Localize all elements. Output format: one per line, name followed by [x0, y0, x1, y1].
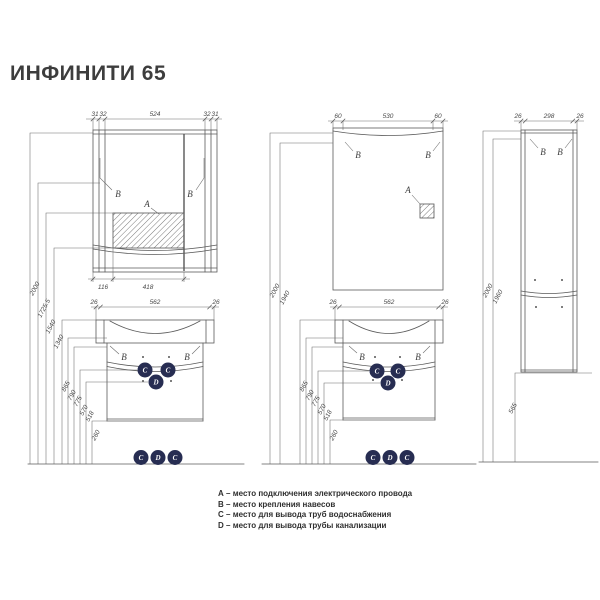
- dim-label: 1340: [53, 334, 66, 350]
- dim-label: 524: [150, 111, 161, 118]
- marker-c-label: C: [143, 367, 148, 375]
- dim-label: 562: [384, 299, 395, 306]
- marker-d-label: D: [154, 454, 160, 462]
- legend-text: – место для вывода труб водоснабжения: [226, 510, 391, 519]
- marker-c-label: C: [405, 454, 410, 462]
- marker-c-label: C: [166, 367, 171, 375]
- legend-text: – место подключения электрического прово…: [226, 489, 412, 498]
- marker-b-label: B: [121, 352, 127, 362]
- marker-d-label: D: [384, 380, 390, 388]
- legend-letter: B: [218, 500, 224, 509]
- legend-letter: C: [218, 510, 224, 519]
- dim-label: 298: [543, 113, 555, 120]
- left-floor-pipes: C D C: [134, 450, 183, 465]
- marker-c-label: C: [139, 454, 144, 462]
- right-floor-pipes: C D C: [366, 450, 415, 465]
- dim-label: 1725.5: [37, 298, 53, 319]
- left-mirror-cabinet: B B A: [93, 130, 217, 272]
- marker-a-label: A: [404, 185, 411, 195]
- dim-label: 1540: [45, 319, 58, 335]
- marker-b-label: B: [355, 150, 361, 160]
- column-top-dimension: 26 298 26: [513, 113, 584, 130]
- marker-c-label: C: [173, 454, 178, 462]
- drawing-sheet: ИНФИНИТИ 65 31 32 524 32 31: [0, 0, 600, 600]
- marker-c-label: C: [375, 368, 380, 376]
- dim-label: 32: [99, 111, 107, 118]
- dim-label: 116: [98, 284, 109, 291]
- marker-b-label: B: [359, 352, 365, 362]
- legend-text: – место крепления навесов: [226, 500, 335, 509]
- electrical-zone: [113, 213, 184, 248]
- marker-b-label: B: [557, 147, 563, 157]
- column-cabinet: B B: [521, 130, 577, 372]
- marker-c-label: C: [371, 454, 376, 462]
- legend-letter: A: [218, 489, 224, 498]
- left-vanity-cabinet: B B C C D: [96, 320, 214, 421]
- column-vertical-dimensions: 2000 1960 565: [481, 131, 592, 462]
- electrical-zone: [420, 204, 434, 218]
- legend: A – место подключения электрического про…: [218, 489, 412, 531]
- left-vanity-top-dimension: 26 562 26: [89, 299, 220, 320]
- marker-b-label: B: [415, 352, 421, 362]
- left-unit: 31 32 524 32 31 B: [28, 111, 244, 465]
- dim-label: 60: [434, 113, 442, 120]
- marker-b-label: B: [425, 150, 431, 160]
- legend-item-d: D – место для вывода трубы канализации: [218, 521, 412, 532]
- dim-label: 60: [334, 113, 342, 120]
- dim-label: 1960: [492, 289, 505, 305]
- marker-b-label: B: [115, 189, 121, 199]
- column-unit: 26 298 26 B B: [479, 113, 598, 462]
- marker-b-label: B: [184, 352, 190, 362]
- dim-label: 26: [211, 299, 220, 306]
- legend-item-b: B – место крепления навесов: [218, 500, 412, 511]
- dim-label: 26: [328, 299, 337, 306]
- right-vertical-dimensions: 2000 1940 865 790 775 570 518 260: [268, 133, 380, 464]
- dim-label: 31: [211, 111, 219, 118]
- dim-label: 1940: [279, 290, 292, 306]
- marker-b-label: B: [187, 189, 193, 199]
- left-mirror-top-dimension: 31 32 524 32 31: [86, 111, 222, 130]
- marker-d-label: D: [386, 454, 392, 462]
- marker-c-label: C: [396, 368, 401, 376]
- legend-letter: D: [218, 521, 224, 530]
- legend-item-c: C – место для вывода труб водоснабжения: [218, 510, 412, 521]
- dim-label: 565: [508, 402, 519, 415]
- dim-label: 26: [89, 299, 98, 306]
- marker-b-label: B: [540, 147, 546, 157]
- legend-text: – место для вывода трубы канализации: [226, 521, 386, 530]
- right-mirror-top-dimension: 60 530 60: [328, 113, 448, 130]
- dim-label: 418: [143, 284, 154, 291]
- dim-label: 562: [150, 299, 161, 306]
- right-vanity-cabinet: B B C C D: [335, 320, 443, 420]
- right-mirror: B B A: [333, 128, 443, 290]
- left-vertical-dimensions: 2000 1725.5 1540 1340 865 790 775 570 51…: [28, 133, 148, 464]
- right-unit: 60 530 60 B B A 26: [262, 113, 476, 465]
- marker-d-label: D: [152, 379, 158, 387]
- legend-item-a: A – место подключения электрического про…: [218, 489, 412, 500]
- right-vanity-top-dimension: 26 562 26: [328, 299, 449, 320]
- marker-a-label: A: [143, 199, 150, 209]
- dim-label: 530: [383, 113, 394, 120]
- dim-label: 32: [203, 111, 211, 118]
- dim-label: 31: [91, 111, 99, 118]
- dim-label: 26: [440, 299, 449, 306]
- dim-label: 26: [513, 113, 522, 120]
- dim-label: 26: [575, 113, 584, 120]
